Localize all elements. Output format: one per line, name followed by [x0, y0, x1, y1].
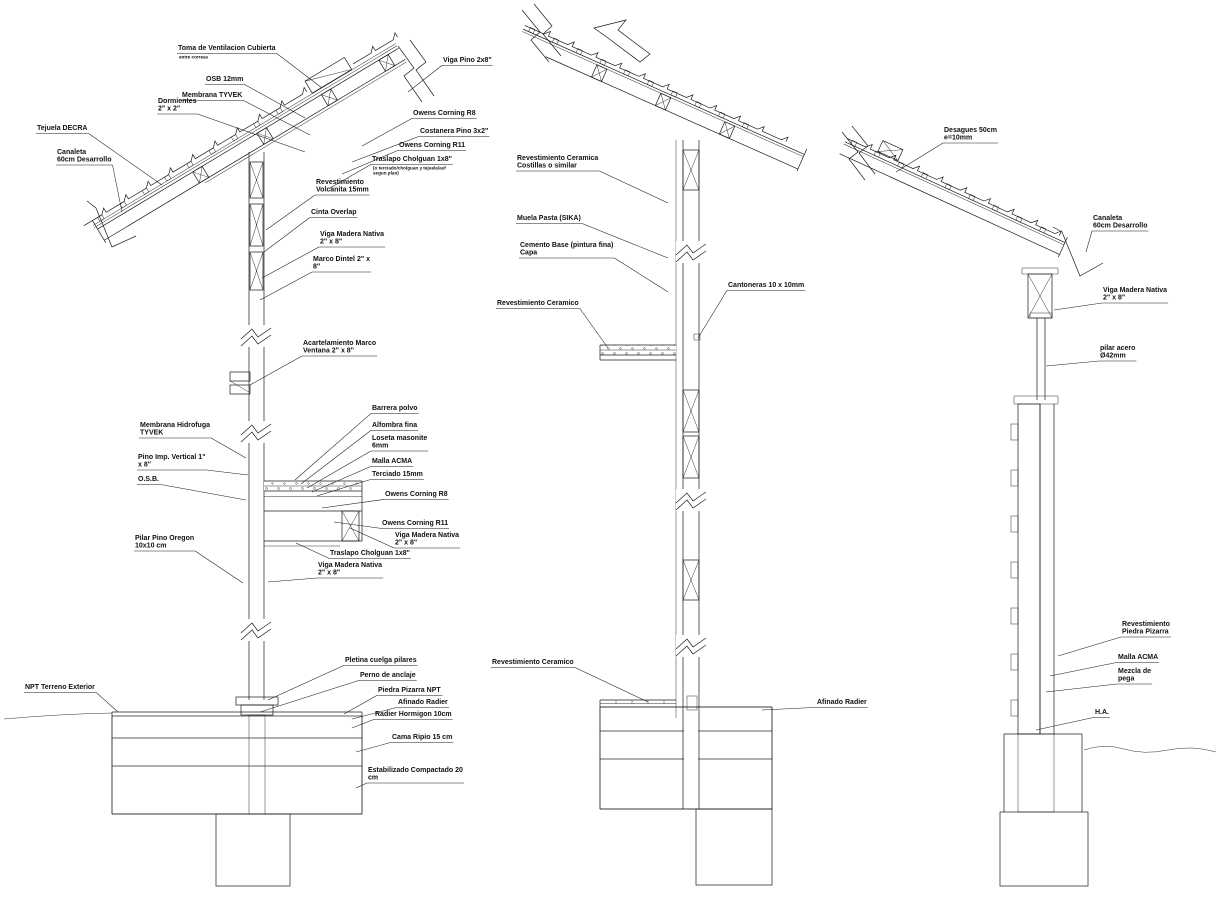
annotation-muela-pasta-sika: Muela Pasta (SIKA)	[516, 215, 668, 258]
annotation-text: Acartelamiento Marco	[303, 340, 376, 347]
annotation-dormientes-2x2: Dormientes2" x 2"	[157, 98, 305, 152]
right-beam-and-pillar	[1014, 268, 1058, 404]
left-column-base	[236, 697, 278, 814]
annotation-text: Tejuela DECRA	[37, 125, 87, 132]
annotation-text: Muela Pasta (SIKA)	[517, 215, 581, 222]
stud-section	[683, 560, 699, 600]
annotation-pino-imp-vertical-1x8: Pino Imp. Vertical 1"x 8"	[137, 454, 248, 475]
annotation-text: 60cm Desarrollo	[57, 157, 111, 164]
annotation-text: 2" x 8"	[320, 239, 342, 246]
annotation-estabilizado-compactado-20cm: Estabilizado Compactado 20cm	[356, 767, 464, 788]
stud-section	[250, 204, 263, 246]
left-mid-floor	[264, 481, 362, 546]
annotation-osb: O.S.B.	[137, 476, 246, 500]
leader-line	[356, 783, 464, 788]
annotation-text: Owens Corning R11	[399, 142, 465, 149]
leader-line	[268, 578, 383, 582]
stud-section	[719, 122, 735, 139]
annotation-text: Costillas o similar	[517, 163, 577, 170]
annotation-text: Pletina cuelga pilares	[345, 657, 417, 664]
annotation-text: Pilar Pino Oregon	[135, 535, 194, 542]
leader-line	[519, 258, 668, 292]
annotation-text: Piedra Pizarra NPT	[378, 687, 441, 694]
annotation-text: 10x10 cm	[135, 543, 167, 550]
leader-line	[56, 165, 122, 212]
stud-section	[342, 511, 359, 541]
middle-mid-floor	[600, 345, 676, 360]
annotation-tejuela-decra: Tejuela DECRA	[36, 125, 162, 185]
right-roof-assembly	[838, 126, 1072, 257]
annotation-text: Viga Madera Nativa	[395, 532, 459, 539]
window-sill	[230, 372, 250, 394]
stud-section	[1028, 274, 1052, 318]
annotation-text: Capa	[520, 250, 537, 257]
annotation-text: O.S.B.	[138, 476, 159, 483]
break-symbol	[241, 421, 271, 443]
annotation-revestimiento-piedra-pizarra: RevestimientoPiedra Pizarra	[1058, 621, 1171, 656]
annotation-subtext: segun plan)	[373, 170, 399, 175]
annotation-text: pilar acero	[1100, 345, 1135, 352]
annotation-text: Barrera polvo	[372, 405, 418, 412]
annotation-text: Viga Madera Nativa	[1103, 287, 1167, 294]
annotation-text: Dormientes	[158, 98, 197, 105]
annotation-text: Volcanita 15mm	[316, 187, 369, 194]
annotation-text: Ventana 2" x 8"	[303, 348, 354, 355]
annotation-radier-hormigon-10cm: Radier Hormigon 10cm	[352, 711, 453, 728]
annotation-text: Revestimiento Ceramica	[517, 155, 598, 162]
stud-section	[655, 93, 671, 110]
annotation-canaleta-60cm-right: Canaleta60cm Desarrollo	[1086, 215, 1148, 252]
stud-section	[591, 65, 607, 82]
annotation-text: 2" x 8"	[318, 570, 340, 577]
annotation-membrana-hidrofuga-tyvek: Membrana HidrofugaTYVEK	[139, 422, 246, 458]
annotation-text: Cemento Base (pintura fina)	[520, 242, 613, 249]
annotation-viga-madera-nativa-piso: Viga Madera Nativa2" x 8"	[350, 528, 460, 548]
annotation-text: Toma de Ventilacion Cubierta	[178, 45, 276, 52]
left-roof-assembly	[79, 29, 411, 248]
break-symbol	[241, 325, 271, 347]
leader-line	[762, 707, 868, 710]
annotation-text: Membrana Hidrofuga	[140, 422, 210, 429]
annotation-subtext: entre correas	[179, 54, 209, 59]
annotation-text: Alfombra fina	[372, 422, 417, 429]
left-wall	[230, 152, 271, 700]
annotation-marco-dintel-2x8: Marco Dintel 2" x8"	[260, 256, 371, 300]
leader-line	[250, 356, 377, 385]
annotation-text: Owens Corning R11	[382, 520, 448, 527]
stud-section	[683, 390, 699, 432]
middle-floor-slab	[600, 696, 772, 885]
annotation-traslapo-cholguan-piso: Traslapo Cholguan 1x8"	[296, 543, 411, 558]
annotation-text: Owens Corning R8	[385, 491, 448, 498]
annotation-text: Viga Pino 2x8"	[443, 57, 492, 64]
leader-line	[516, 223, 668, 258]
annotation-text: 6mm	[372, 443, 388, 450]
right-footing	[1000, 812, 1088, 886]
annotation-text: Malla ACMA	[1118, 654, 1158, 661]
annotation-owens-corning-r8-piso: Owens Corning R8	[322, 491, 449, 508]
annotation-desagues-50cm: Desagues 50cme=10mm	[896, 127, 998, 172]
leader-line	[268, 665, 418, 700]
leader-line	[491, 667, 648, 702]
annotation-text: Perno de anclaje	[360, 672, 416, 679]
stud-section	[193, 166, 209, 183]
leader-line	[408, 65, 493, 92]
annotation-cama-ripio-15cm: Cama Ripio 15 cm	[356, 734, 453, 752]
annotation-text: Traslapo Cholguan 1x8"	[330, 550, 410, 557]
right-section-detail	[838, 126, 1216, 886]
annotation-viga-madera-nativa-roof: Viga Madera Nativa2" x 8"	[262, 231, 385, 278]
annotation-text: Marco Dintel 2" x	[313, 256, 370, 263]
annotation-afinado-radier-mid: Afinado Radier	[762, 699, 868, 710]
leader-line	[137, 484, 246, 500]
roof-tiles	[81, 87, 306, 225]
stud-section	[683, 150, 699, 190]
exterior-grade	[4, 713, 112, 719]
annotation-text: Cinta Overlap	[311, 209, 357, 216]
annotation-text: Viga Madera Nativa	[320, 231, 384, 238]
leader-line	[352, 719, 453, 728]
stud-section	[379, 54, 395, 71]
annotation-text: Revestimiento	[316, 179, 364, 186]
slope-arrow	[594, 20, 650, 62]
annotation-revestimiento-volcanita-15mm: RevestimientoVolcanita 15mm	[266, 179, 370, 230]
annotation-text: Terciado 15mm	[372, 471, 423, 478]
break-symbol	[676, 635, 706, 657]
annotation-barrera-polvo: Barrera polvo	[295, 405, 419, 480]
annotation-text: Owens Corning R8	[413, 110, 476, 117]
annotation-text: Mezcla de	[1118, 668, 1151, 675]
annotation-text: 8"	[313, 264, 320, 271]
annotation-pilar-pino-oregon: Pilar Pino Oregon10x10 cm	[134, 535, 243, 583]
annotation-text: x 8"	[138, 462, 151, 469]
annotation-hormigon-armado: H.A.	[1036, 709, 1110, 730]
annotation-layer: Toma de Ventilacion Cubiertaentre correa…	[24, 45, 1171, 788]
annotation-text: Revestimiento	[1122, 621, 1170, 628]
annotation-pilar-acero-42mm: pilar aceroØ42mm	[1046, 345, 1136, 366]
annotation-viga-madera-nativa-muro: Viga Madera Nativa2" x 8"	[268, 562, 383, 582]
leader-line	[1046, 361, 1136, 366]
right-stone-wall	[1011, 404, 1054, 734]
annotation-text: Desagues 50cm	[944, 127, 997, 134]
annotation-text: 60cm Desarrollo	[1093, 223, 1147, 230]
annotation-text: Malla ACMA	[372, 458, 412, 465]
right-base-and-footing	[1000, 734, 1216, 886]
annotation-revestimiento-ceramico-muro: Revestimiento Ceramico	[496, 300, 608, 348]
leader-line	[260, 272, 371, 300]
annotation-text: Radier Hormigon 10cm	[375, 711, 452, 718]
annotation-text: Piedra Pizarra	[1122, 629, 1169, 636]
annotation-text: 2" x 2"	[158, 106, 180, 113]
annotation-text: Canaleta	[1093, 215, 1122, 222]
roof-battens	[850, 140, 1046, 233]
annotation-text: Afinado Radier	[817, 699, 867, 706]
annotation-toma-ventilacion-cubierta: Toma de Ventilacion Cubiertaentre correa…	[177, 45, 322, 88]
annotation-mezcla-de-pega: Mezcla depega	[1046, 668, 1152, 692]
leader-line	[1086, 231, 1148, 252]
annotation-text: 2" x 8"	[1103, 295, 1125, 302]
stud-section	[683, 436, 699, 478]
annotation-text: Costanera Pino 3x2"	[420, 128, 488, 135]
annotation-text: Viga Madera Nativa	[318, 562, 382, 569]
leader-line	[516, 171, 668, 203]
leader-line	[260, 680, 417, 712]
cad-canvas: Toma de Ventilacion Cubiertaentre correa…	[0, 0, 1216, 918]
leader-line	[322, 499, 449, 508]
leader-line	[205, 84, 305, 118]
leader-line	[1036, 717, 1110, 730]
annotation-npt-terreno-exterior: NPT Terreno Exterior	[24, 684, 118, 712]
break-symbol	[676, 241, 706, 263]
annotation-text: Afinado Radier	[398, 699, 448, 706]
annotation-text: Revestimiento Ceramico	[497, 300, 579, 307]
leader-line	[181, 100, 310, 135]
annotation-text: Traslapo Cholguan 1x8"	[372, 156, 452, 163]
stud-section	[250, 252, 263, 290]
roof-break-symbol	[398, 40, 434, 102]
annotation-cemento-base-pintura-fina: Cemento Base (pintura fina)Capa	[519, 242, 668, 292]
left-footing	[216, 814, 290, 886]
break-symbol	[241, 619, 271, 641]
roof-tiles	[525, 21, 788, 142]
roof-battens	[529, 27, 749, 128]
annotation-revestimiento-ceramico-piso: Revestimiento Ceramico	[491, 659, 648, 702]
middle-footing	[696, 809, 772, 885]
stud-section	[250, 162, 263, 198]
annotation-text: pega	[1118, 676, 1134, 683]
annotation-text: Loseta masonite	[372, 435, 427, 442]
leader-line	[137, 470, 248, 475]
annotation-text: NPT Terreno Exterior	[25, 684, 95, 691]
break-symbol	[676, 489, 706, 511]
annotation-text: 2" x 8"	[395, 540, 417, 547]
leader-line	[1046, 684, 1152, 692]
annotation-text: Revestimiento Ceramico	[492, 659, 574, 666]
construction-details-drawing: Toma de Ventilacion Cubiertaentre correa…	[0, 0, 1216, 918]
annotation-viga-madera-nativa-right: Viga Madera Nativa2" x 8"	[1054, 287, 1168, 310]
left-floor-slab	[4, 712, 362, 886]
annotation-text: Ø42mm	[1100, 353, 1126, 360]
annotation-text: Pino Imp. Vertical 1"	[138, 454, 206, 461]
leader-line	[134, 551, 243, 583]
ground-line	[1084, 746, 1216, 752]
annotation-revestimiento-ceramica-costillas: Revestimiento CeramicaCostillas o simila…	[516, 155, 668, 203]
annotation-text: Cantoneras 10 x 10mm	[728, 282, 804, 289]
middle-roof-assembly	[516, 21, 808, 171]
annotation-viga-pino-2x8: Viga Pino 2x8"	[408, 57, 493, 92]
annotation-text: cm	[368, 775, 378, 782]
annotation-text: TYVEK	[140, 430, 163, 437]
leader-line	[1054, 303, 1168, 310]
annotation-text: Cama Ripio 15 cm	[392, 734, 452, 741]
annotation-text: Estabilizado Compactado 20	[368, 767, 463, 774]
annotation-text: Canaleta	[57, 149, 86, 156]
leader-line	[698, 290, 805, 338]
middle-section-detail	[516, 4, 808, 885]
leader-line	[24, 692, 118, 712]
ridge-vent	[305, 57, 352, 93]
annotation-text: OSB 12mm	[206, 76, 243, 83]
annotation-text: e=10mm	[944, 135, 972, 142]
leader-line	[496, 308, 608, 348]
leader-line	[356, 742, 453, 752]
annotation-text: H.A.	[1095, 709, 1109, 716]
annotation-cantoneras-10x10: Cantoneras 10 x 10mm	[698, 282, 805, 338]
stud-section	[321, 89, 337, 106]
